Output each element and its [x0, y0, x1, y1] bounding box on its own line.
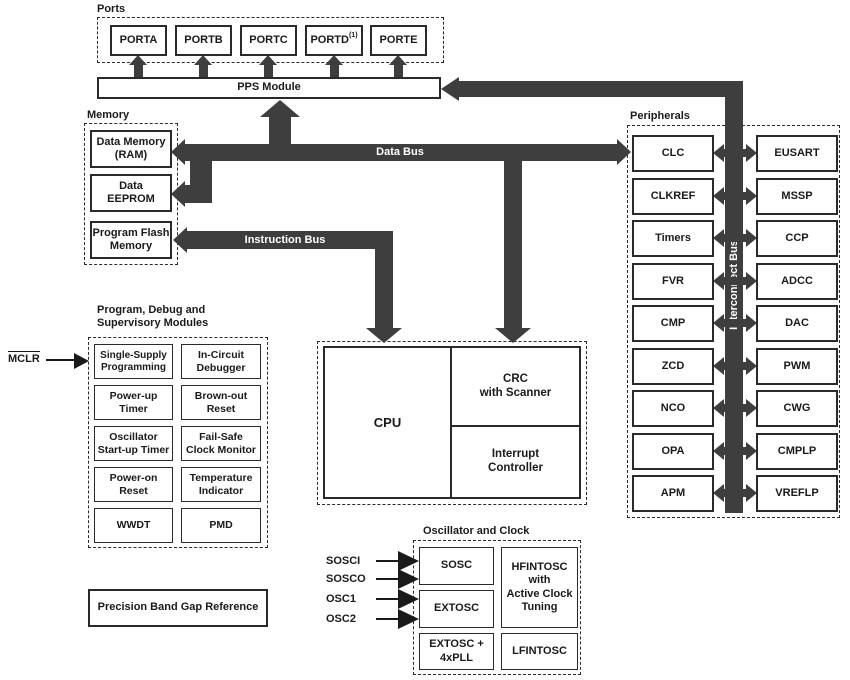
clkref-box: CLKREF [632, 178, 714, 215]
portd-footnote-superscript: (1) [349, 32, 358, 40]
brown-out-reset-box: Brown-out Reset [181, 385, 261, 420]
peripherals-section-label: Peripherals [630, 110, 690, 123]
sosci-line [376, 560, 400, 562]
pmd-box: PMD [181, 508, 261, 543]
portd-arrowhead [325, 55, 343, 65]
osc2-arrowhead [398, 609, 419, 629]
osc1-arrowhead [398, 589, 419, 609]
portd-box: PORTD(1) [305, 25, 363, 56]
clc-box: CLC [632, 135, 714, 172]
osc1-line [376, 598, 400, 600]
hfintosc-box: HFINTOSC with Active Clock Tuning [501, 547, 578, 628]
cpu-box: CPU [323, 346, 452, 499]
periph-row-arrow-left-3 [713, 229, 724, 247]
wwdt-box: WWDT [94, 508, 173, 543]
periph-row-arrow-left-4 [713, 272, 724, 290]
vreflp-box: VREFLP [756, 475, 838, 512]
portd-stub [330, 64, 339, 78]
portc-arrowhead [259, 55, 277, 65]
porte-arrowhead [389, 55, 407, 65]
ports-section-label: Ports [97, 3, 125, 16]
periph-row-arrow-left-6 [713, 357, 724, 375]
osc1-label: OSC1 [326, 593, 356, 605]
dac-box: DAC [756, 305, 838, 342]
data-bus-arrowhead-left [171, 139, 185, 165]
in-circuit-debugger-box: In-Circuit Debugger [181, 344, 261, 379]
mcu-block-diagram: Interconnect Bus Data Bus Instruction Bu… [0, 0, 850, 680]
pps-branch-arrowhead [260, 100, 300, 117]
interconnect-bus-label: Interconnect Bus [728, 240, 740, 330]
crc-with-scanner-box: CRC with Scanner [450, 346, 581, 427]
osc2-line [376, 618, 400, 620]
timers-box: Timers [632, 220, 714, 257]
osc2-label: OSC2 [326, 613, 356, 625]
nco-box: NCO [632, 390, 714, 427]
data-bus-label: Data Bus [300, 146, 500, 158]
sosci-arrowhead [398, 551, 419, 571]
portc-stub [264, 64, 273, 78]
periph-row-arrow-left-8 [713, 442, 724, 460]
power-up-timer-box: Power-up Timer [94, 385, 173, 420]
zcd-box: ZCD [632, 348, 714, 385]
porta-stub [134, 64, 143, 78]
instruction-bus-vertical [375, 231, 393, 328]
interrupt-controller-box: Interrupt Controller [450, 425, 581, 499]
fail-safe-clock-monitor-box: Fail-Safe Clock Monitor [181, 426, 261, 461]
instruction-bus-label: Instruction Bus [200, 234, 370, 246]
pps-link-arrowhead [441, 77, 459, 101]
sosco-label: SOSCO [326, 573, 366, 585]
memory-section-label: Memory [87, 109, 129, 122]
eeprom-branch-horizontal [184, 185, 212, 203]
ccp-box: CCP [756, 220, 838, 257]
crc-branch-vertical [504, 160, 522, 328]
single-supply-programming-box: Single-Supply Programming [94, 344, 173, 379]
mclr-line [46, 359, 75, 361]
sosci-label: SOSCI [326, 555, 360, 567]
extosc-box: EXTOSC [419, 590, 494, 628]
oscillator-start-up-timer-box: Oscillator Start-up Timer [94, 426, 173, 461]
lfintosc-box: LFINTOSC [501, 633, 578, 670]
cpu-arrowhead [366, 328, 402, 343]
mclr-arrowhead [74, 353, 89, 369]
temperature-indicator-box: Temperature Indicator [181, 467, 261, 502]
eeprom-branch-arrowhead [171, 181, 185, 207]
sosco-line [376, 578, 400, 580]
data-memory-ram-box: Data Memory (RAM) [90, 130, 172, 168]
cmplp-box: CMPLP [756, 433, 838, 470]
cmp-box: CMP [632, 305, 714, 342]
pps-interconnect-link-bus [459, 81, 743, 97]
pps-module-box: PPS Module [97, 77, 441, 99]
data-eeprom-box: Data EEPROM [90, 174, 172, 212]
portb-arrowhead [194, 55, 212, 65]
opa-box: OPA [632, 433, 714, 470]
oscillator-section-label: Oscillator and Clock [423, 525, 529, 538]
porte-stub [394, 64, 403, 78]
mssp-box: MSSP [756, 178, 838, 215]
portb-box: PORTB [175, 25, 232, 56]
portb-stub [199, 64, 208, 78]
portc-box: PORTC [240, 25, 297, 56]
extosc-4xpll-box: EXTOSC + 4xPLL [419, 633, 494, 670]
adcc-box: ADCC [756, 263, 838, 300]
debug-section-label: Program, Debug and Supervisory Modules [97, 304, 208, 330]
periph-row-arrow-left-1 [713, 144, 724, 162]
cwg-box: CWG [756, 390, 838, 427]
data-bus-arrowhead-right [617, 139, 631, 165]
mclr-label: MCLR [8, 351, 40, 365]
fvr-box: FVR [632, 263, 714, 300]
porta-box: PORTA [110, 25, 167, 56]
periph-row-arrow-left-2 [713, 187, 724, 205]
crc-arrowhead [495, 328, 531, 343]
portd-label: PORTD [310, 34, 349, 47]
periph-row-arrow-left-5 [713, 314, 724, 332]
porta-arrowhead [129, 55, 147, 65]
program-flash-memory-box: Program Flash Memory [90, 221, 172, 259]
sosc-box: SOSC [419, 547, 494, 585]
power-on-reset-box: Power-on Reset [94, 467, 173, 502]
instruction-bus-arrowhead [173, 227, 187, 253]
eusart-box: EUSART [756, 135, 838, 172]
periph-row-arrow-left-9 [713, 484, 724, 502]
apm-box: APM [632, 475, 714, 512]
sosco-arrowhead [398, 569, 419, 589]
periph-row-arrow-left-7 [713, 399, 724, 417]
porte-box: PORTE [370, 25, 427, 56]
pwm-box: PWM [756, 348, 838, 385]
precision-band-gap-reference-box: Precision Band Gap Reference [88, 589, 268, 627]
pps-branch-stem [269, 116, 291, 146]
